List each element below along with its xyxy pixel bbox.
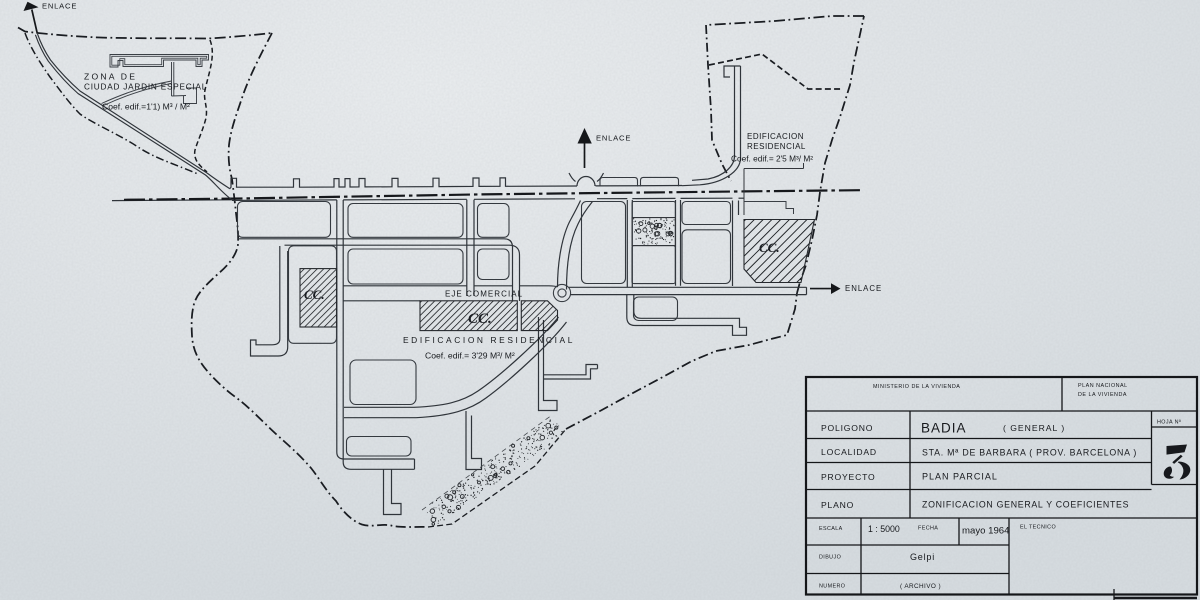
svg-text:CC.: CC. <box>759 240 780 255</box>
svg-text:Coef. edif.= 2'5 M³/ M²: Coef. edif.= 2'5 M³/ M² <box>731 154 813 164</box>
svg-text:Coef. edif.= 3'29 M³/ M²: Coef. edif.= 3'29 M³/ M² <box>425 351 515 361</box>
svg-text:EL TECNICO: EL TECNICO <box>1020 525 1056 531</box>
svg-text:EDIFICACION RESIDENCIAL: EDIFICACION RESIDENCIAL <box>403 335 575 345</box>
svg-text:LOCALIDAD: LOCALIDAD <box>821 447 877 457</box>
svg-text:NUMERO: NUMERO <box>819 584 845 590</box>
svg-text:ENLACE: ENLACE <box>845 284 882 293</box>
svg-text:Gelpi: Gelpi <box>910 552 935 562</box>
svg-text:ENLACE: ENLACE <box>596 134 631 143</box>
svg-text:ESCALA: ESCALA <box>819 526 843 532</box>
svg-text:CC.: CC. <box>468 311 492 327</box>
svg-text:FECHA: FECHA <box>918 526 938 532</box>
svg-text:PROYECTO: PROYECTO <box>821 472 875 482</box>
svg-text:PLANO: PLANO <box>821 500 854 510</box>
svg-text:1 : 5000: 1 : 5000 <box>868 524 900 534</box>
svg-text:RESIDENCIAL: RESIDENCIAL <box>747 142 806 151</box>
svg-text:Coef. edif.=1'1) M³ / M²: Coef. edif.=1'1) M³ / M² <box>102 102 190 112</box>
svg-text:( ARCHIVO ): ( ARCHIVO ) <box>900 583 941 590</box>
svg-text:BADIA: BADIA <box>921 421 967 436</box>
svg-text:CC.: CC. <box>304 287 325 302</box>
svg-text:MINISTERIO DE LA VIVIENDA: MINISTERIO DE LA VIVIENDA <box>873 384 960 390</box>
svg-text:EJE COMERCIAL: EJE COMERCIAL <box>445 290 523 299</box>
svg-text:ZONA DE: ZONA DE <box>84 72 137 82</box>
svg-text:PLAN PARCIAL: PLAN PARCIAL <box>922 472 998 482</box>
svg-text:PLAN NACIONAL: PLAN NACIONAL <box>1078 383 1128 389</box>
svg-text:HOJA Nº: HOJA Nº <box>1157 420 1181 426</box>
svg-text:POLIGONO: POLIGONO <box>821 423 873 433</box>
svg-text:DE LA VIVIENDA: DE LA VIVIENDA <box>1078 392 1127 398</box>
svg-text:CIUDAD JARDIN ESPECIAL: CIUDAD JARDIN ESPECIAL <box>84 83 207 92</box>
svg-text:ENLACE: ENLACE <box>42 2 77 11</box>
svg-text:ZONIFICACION GENERAL Y COEF: ZONIFICACION GENERAL Y COEFICIENTES <box>922 500 1129 510</box>
svg-text:STA. Mª DE BARBARA ( PROV.: STA. Mª DE BARBARA ( PROV. BARCELONA ) <box>922 448 1137 458</box>
svg-text:EDIFICACION: EDIFICACION <box>747 132 804 141</box>
svg-text:( GENERAL ): ( GENERAL ) <box>1003 423 1065 433</box>
svg-text:mayo 1964: mayo 1964 <box>962 526 1010 537</box>
svg-text:DIBUJO: DIBUJO <box>819 555 841 561</box>
